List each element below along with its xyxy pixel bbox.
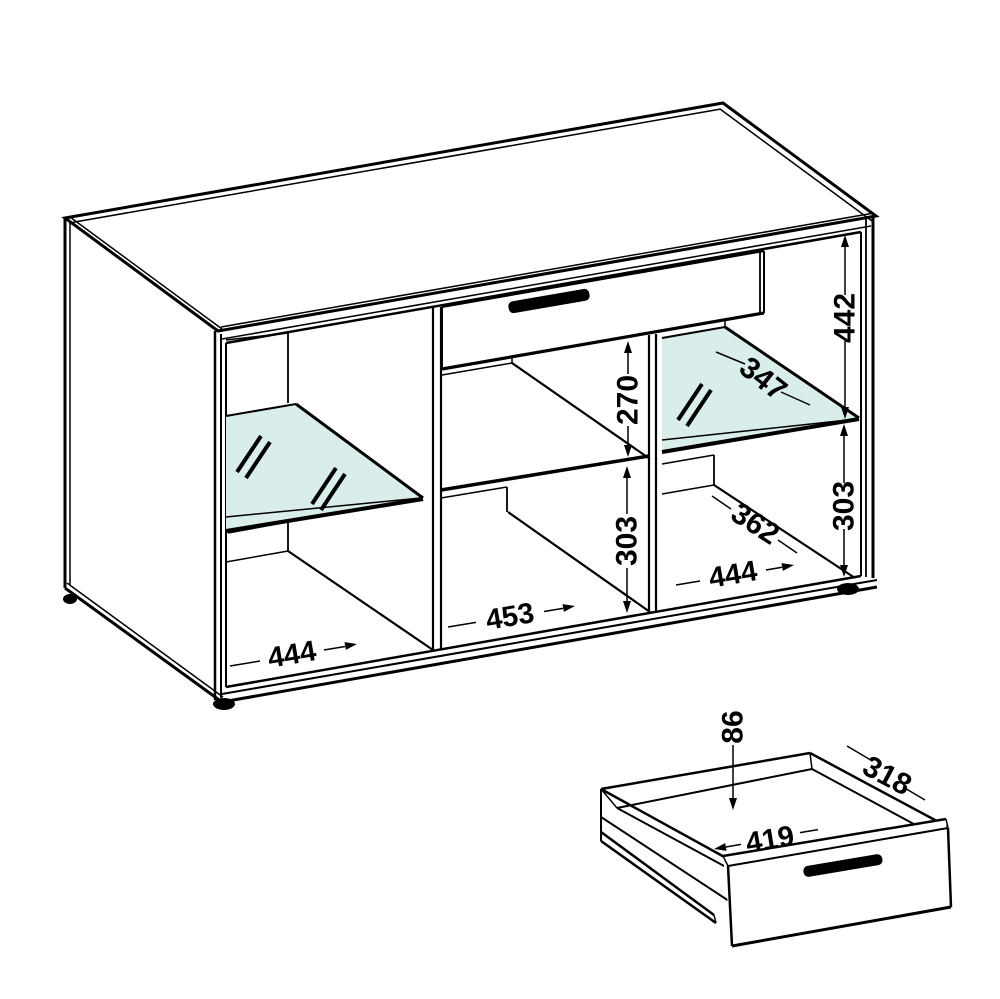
svg-text:270: 270 <box>612 375 645 425</box>
dim-middle-cell-width: 453 <box>448 597 575 637</box>
svg-text:362: 362 <box>725 497 785 552</box>
middle-shelf <box>441 456 649 490</box>
dim-right-lower-height: 303 <box>828 424 861 577</box>
foot-front-right <box>837 583 859 595</box>
svg-text:444: 444 <box>265 635 318 675</box>
dim-right-lower-depth: 362 <box>712 496 797 553</box>
dim-middle-upper-height: 270 <box>612 341 645 457</box>
foot-back-left <box>63 594 77 604</box>
svg-text:453: 453 <box>483 597 536 637</box>
page: 442 347 270 303 303 <box>0 0 1000 999</box>
dim-left-cell-width: 444 <box>230 635 357 675</box>
svg-text:442: 442 <box>829 293 862 343</box>
foot-front-left <box>213 698 235 710</box>
dim-right-cell-width: 444 <box>676 555 794 595</box>
dim-drawer-height: 86 <box>717 710 750 810</box>
furniture-dimension-diagram: 442 347 270 303 303 <box>0 0 1000 999</box>
cabinet-bottom-edge <box>222 587 877 702</box>
svg-text:303: 303 <box>828 481 861 531</box>
dim-right-upper-height: 442 <box>829 235 862 419</box>
dim-middle-lower-height: 303 <box>611 466 644 613</box>
svg-text:86: 86 <box>717 710 750 743</box>
glass-shelf-left <box>226 404 423 531</box>
svg-text:444: 444 <box>706 555 759 595</box>
svg-text:303: 303 <box>611 516 644 566</box>
cabinet-drawing <box>63 103 877 710</box>
